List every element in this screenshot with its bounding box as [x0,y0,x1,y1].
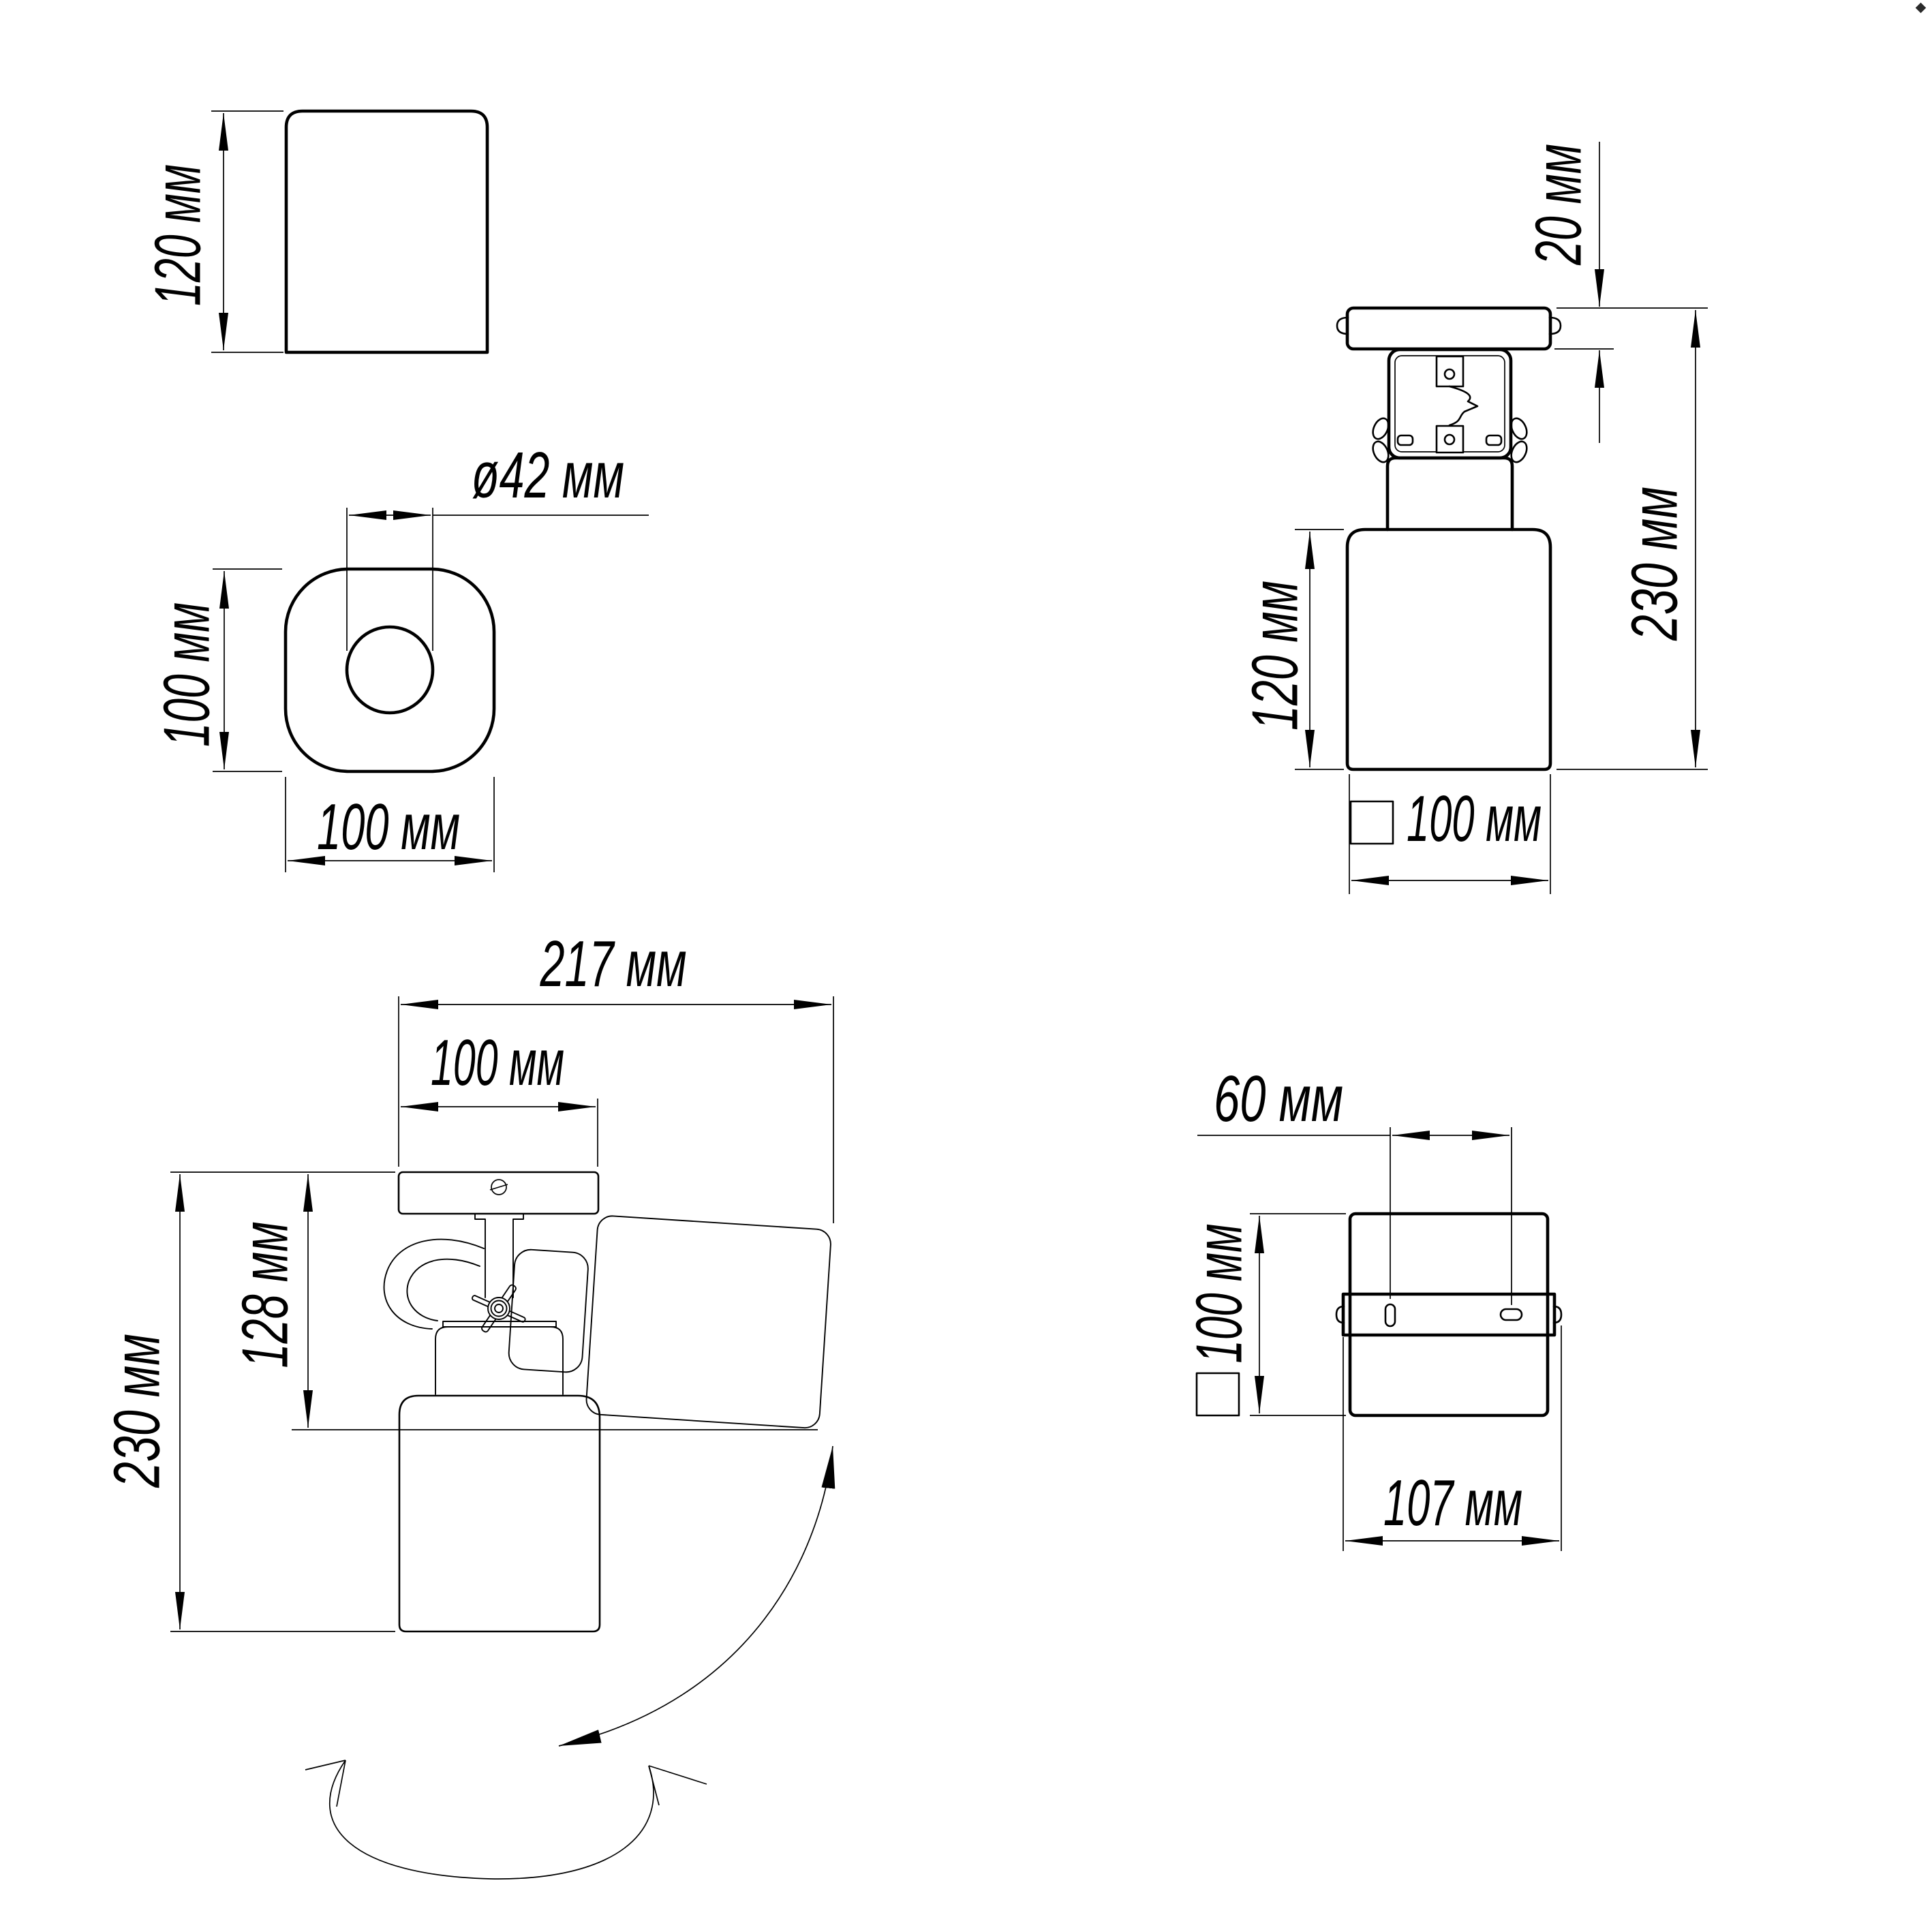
dim-100-label: 100 мм [1407,782,1542,855]
dim-217-label: 217 мм [540,927,687,1000]
dim-230-label: 230 мм [101,1334,174,1488]
dim-60-label: 60 мм [1214,1062,1343,1135]
dim-100-label: 100 мм [431,1026,564,1099]
dim-107-label: 107 мм [1383,1467,1522,1539]
dim-42-label: ø42 мм [472,439,624,512]
dim-128-label: 128 мм [229,1222,302,1368]
dim-120-label: 120 мм [1239,581,1312,731]
dim-120-label: 120 мм [142,164,215,306]
dim-20-label: 20 мм [1522,144,1595,266]
bracket-tab-bottom [1437,426,1463,453]
dim-100v-label: 100 мм [151,602,224,747]
paper-background [0,0,1932,1932]
dim-230-label: 230 мм [1619,487,1691,641]
dimension-drawing: 120 мм ø42 мм 100 мм 100 мм [0,0,1932,1932]
dim-100h-label: 100 мм [317,791,460,863]
technical-drawing-canvas: 120 мм ø42 мм 100 мм 100 мм [0,0,1932,1932]
dim-100-label: 100 мм [1183,1224,1256,1364]
bracket-tab-top [1437,356,1463,386]
